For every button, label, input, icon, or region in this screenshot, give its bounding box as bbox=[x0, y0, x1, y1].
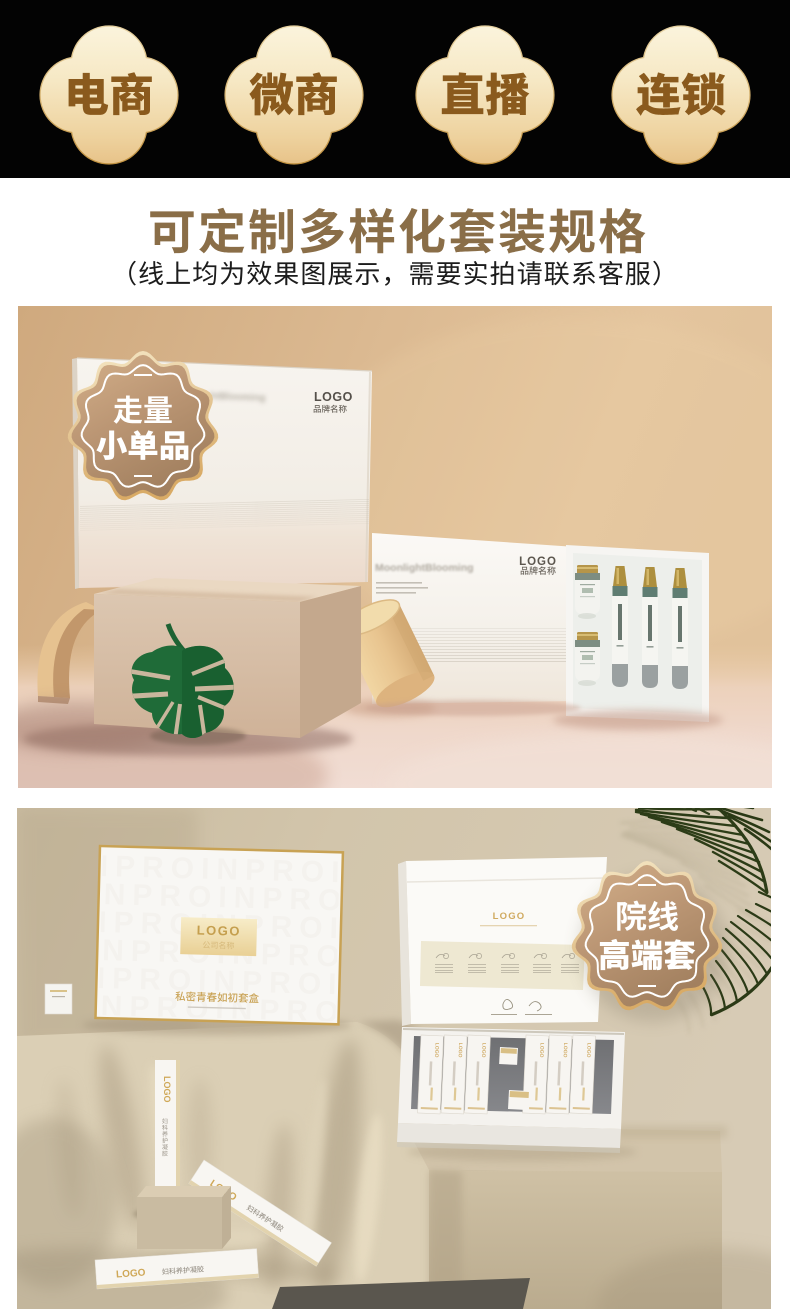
svg-text:LOGO: LOGO bbox=[457, 1043, 464, 1058]
svg-text:LOGO: LOGO bbox=[493, 911, 526, 922]
svg-text:MoonlightBlooming: MoonlightBlooming bbox=[375, 562, 474, 574]
svg-text:LOGO: LOGO bbox=[162, 1076, 172, 1103]
svg-text:LOGO: LOGO bbox=[538, 1043, 545, 1058]
svg-text:LOGO: LOGO bbox=[433, 1043, 440, 1058]
svg-text:LOGO: LOGO bbox=[519, 556, 557, 568]
svg-text:htBlooming: htBlooming bbox=[210, 391, 266, 404]
svg-text:LOGO: LOGO bbox=[480, 1043, 487, 1058]
svg-text:LOGO: LOGO bbox=[562, 1043, 569, 1058]
svg-text:LOGO: LOGO bbox=[314, 390, 353, 404]
svg-text:LOGO: LOGO bbox=[116, 1268, 146, 1281]
svg-text:LOGO: LOGO bbox=[585, 1043, 592, 1058]
svg-text:LOGO: LOGO bbox=[196, 923, 241, 939]
